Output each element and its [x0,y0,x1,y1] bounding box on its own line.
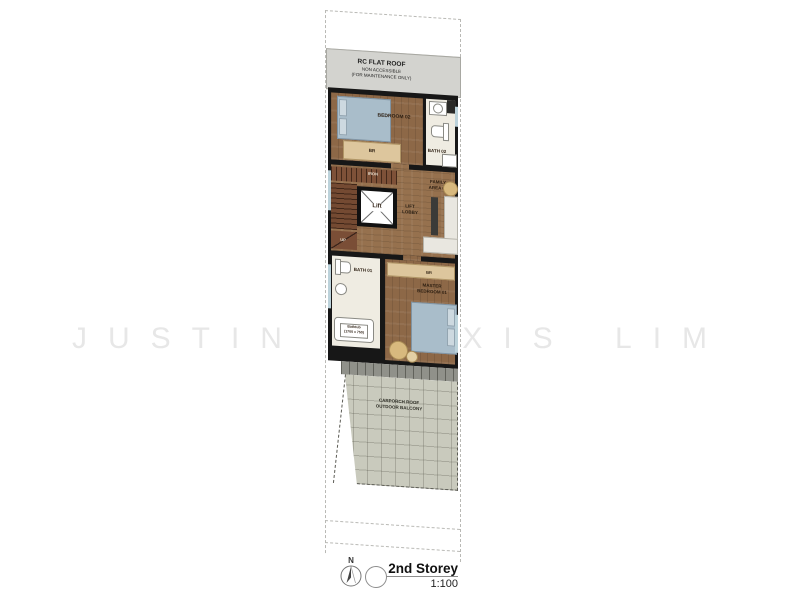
bathtub-label: Bathtub (1700 x 750) [340,323,368,339]
bedroom02-wardrobe-label: BR [344,146,400,156]
pillow-icon [447,328,455,347]
floor-plan-page: { "watermark": "JUSTIN ALEXIS LIM", "roo… [0,0,800,600]
sofa-icon [444,196,458,241]
stair-flight [331,182,357,230]
title-leader-line [386,576,458,577]
bathtub-icon: Bathtub (1700 x 750) [334,317,374,344]
window-icon [328,264,331,308]
lot-boundary-right [460,19,461,562]
cistern-icon [443,123,449,141]
driveway-line [325,520,460,530]
key-plan-circle [365,566,387,588]
rc-flat-roof-label: RC FLAT ROOF NON ACCESSIBLE (FOR MAINTEN… [315,55,448,83]
driveway-line [325,542,460,552]
balcony-edge-left [333,374,346,483]
cistern-icon [335,259,341,275]
sink-icon [335,283,347,296]
side-table-icon [406,350,418,363]
window-icon [455,315,458,353]
shower-icon [442,154,457,168]
north-arrow-icon [340,565,362,587]
lift-lobby-label: LIFT LOBBY [399,203,421,216]
balcony-edge-right [457,382,458,491]
north-label: N [345,556,357,565]
plant-icon [443,181,458,197]
window-icon [328,170,331,210]
carporch-roof-balcony [339,374,458,491]
plan-title: 2nd Storey [388,561,458,576]
pillow-icon [339,99,347,117]
window-icon [455,107,458,127]
lot-boundary-top [325,10,461,20]
pillow-icon [339,118,347,136]
floor-plan-drawing: RC FLAT ROOF NON ACCESSIBLE (FOR MAINTEN… [325,8,461,565]
lot-boundary-left [325,10,326,553]
wardrobe-icon: BR [343,140,401,163]
plan-scale: 1:100 [388,578,458,590]
sink-icon [433,103,443,114]
lift-shaft: Lift [357,186,397,229]
sofa-icon [423,237,458,255]
lift-label: Lift [368,203,386,212]
master-wardrobe-label: BR [422,269,436,275]
pillow-icon [447,308,455,327]
lift-car: Lift [361,190,393,224]
tv-console-icon [431,197,438,235]
title-block: N 2nd Storey 1:100 [335,556,465,598]
